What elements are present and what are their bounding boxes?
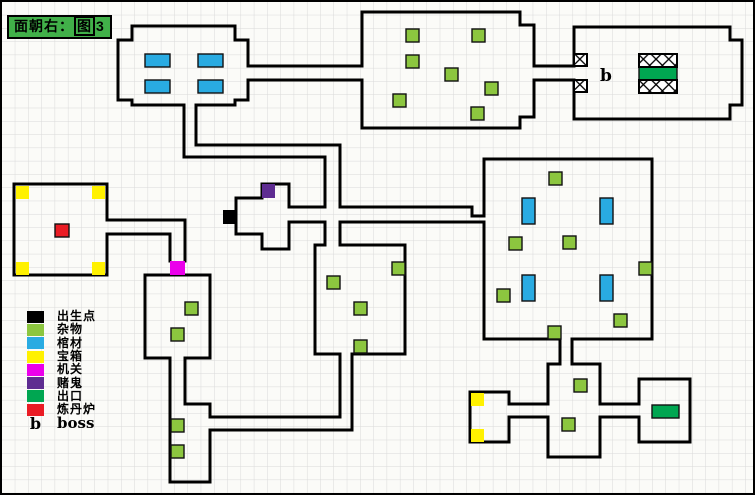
legend-row-gambler: 赌鬼 <box>27 376 96 389</box>
misc-marker <box>497 289 510 302</box>
legend-row-coffin: 棺材 <box>27 337 96 350</box>
legend-swatch-coffin <box>27 337 44 349</box>
hatch-block <box>574 80 587 92</box>
misc-marker <box>614 314 627 327</box>
misc-marker <box>185 302 198 315</box>
furnace-marker <box>55 224 69 237</box>
map-canvas: b <box>2 2 755 495</box>
chest-marker <box>471 429 484 442</box>
coffin-marker <box>600 198 613 224</box>
map-title: 面朝右：图3 <box>7 15 112 39</box>
misc-marker <box>471 107 484 120</box>
legend-swatch-exit <box>27 390 44 402</box>
legend-swatch-chest <box>27 351 44 363</box>
chest-marker <box>92 262 105 275</box>
map-title-number: 3 <box>96 18 105 34</box>
coffin-marker <box>600 275 613 301</box>
misc-marker <box>562 418 575 431</box>
coffin-marker <box>145 80 170 93</box>
mechanism-marker <box>170 261 185 275</box>
misc-marker <box>354 302 367 315</box>
misc-marker <box>485 82 498 95</box>
misc-marker <box>445 68 458 81</box>
misc-marker <box>639 262 652 275</box>
misc-marker <box>472 29 485 42</box>
chest-marker <box>16 186 29 199</box>
legend-row-mechanism: 机关 <box>27 363 96 376</box>
misc-marker <box>393 94 406 107</box>
map-title-text: 面朝右： <box>14 18 74 34</box>
hatch-block <box>639 54 677 67</box>
chest-marker <box>92 186 105 199</box>
misc-marker <box>563 236 576 249</box>
misc-marker <box>548 326 561 339</box>
exit-marker <box>639 67 677 80</box>
gambler-marker <box>262 184 275 198</box>
legend-row-boss: bboss <box>27 416 96 429</box>
legend-label-boss: boss <box>57 417 94 430</box>
coffin-marker <box>198 80 223 93</box>
legend-label-coffin: 棺材 <box>57 337 83 350</box>
misc-marker <box>406 55 419 68</box>
misc-marker <box>406 29 419 42</box>
misc-marker <box>171 328 184 341</box>
legend-swatch-misc <box>27 324 44 336</box>
hatch-block <box>639 80 677 93</box>
chest-marker <box>471 393 484 406</box>
chest-marker <box>16 262 29 275</box>
legend-label-mechanism: 机关 <box>57 363 83 376</box>
legend-swatch-spawn <box>27 311 44 323</box>
legend-label-misc: 杂物 <box>57 323 83 336</box>
misc-marker <box>549 172 562 185</box>
exit-marker <box>652 405 679 418</box>
misc-marker <box>327 276 340 289</box>
spawn-marker <box>223 210 236 224</box>
boss-marker-label: b <box>600 66 612 86</box>
legend-row-misc: 杂物 <box>27 323 96 336</box>
coffin-marker <box>522 275 535 301</box>
misc-marker <box>354 340 367 353</box>
hatch-block <box>574 54 587 66</box>
legend-swatch-mechanism <box>27 364 44 376</box>
misc-marker <box>509 237 522 250</box>
legend-swatch-gambler <box>27 377 44 389</box>
map-title-boxed-char: 图 <box>74 16 95 36</box>
misc-marker <box>392 262 405 275</box>
legend-label-gambler: 赌鬼 <box>57 377 83 390</box>
legend-label-exit: 出口 <box>57 390 83 403</box>
legend: 出生点杂物棺材宝箱机关赌鬼出口炼丹炉bboss <box>27 310 96 430</box>
coffin-marker <box>522 198 535 224</box>
dungeon-map-screenshot: b 面朝右：图3 出生点杂物棺材宝箱机关赌鬼出口炼丹炉bboss <box>0 0 755 495</box>
misc-marker <box>171 419 184 432</box>
coffin-marker <box>145 54 170 67</box>
misc-marker <box>171 445 184 458</box>
coffin-marker <box>198 54 223 67</box>
misc-marker <box>574 379 587 392</box>
legend-symbol-boss: b <box>27 416 44 431</box>
